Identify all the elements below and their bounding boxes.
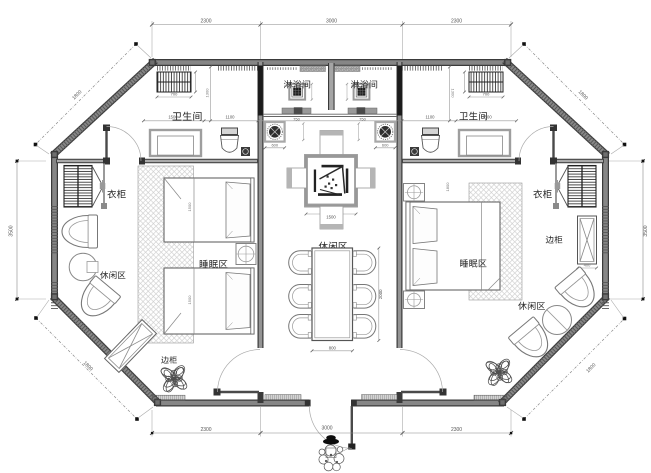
svg-text:1300: 1300: [205, 88, 210, 98]
svg-text:1500: 1500: [187, 295, 192, 305]
svg-text:600: 600: [271, 143, 278, 148]
svg-text:1500: 1500: [326, 215, 336, 220]
svg-text:1800: 1800: [445, 182, 450, 192]
svg-text:700: 700: [171, 92, 178, 97]
svg-text:400: 400: [584, 263, 591, 268]
svg-text:2300: 2300: [451, 19, 462, 25]
svg-text:2000: 2000: [378, 289, 383, 299]
svg-text:600: 600: [382, 143, 389, 148]
svg-text:1500: 1500: [187, 202, 192, 212]
svg-text:750: 750: [293, 117, 300, 122]
svg-text:3000: 3000: [321, 426, 332, 432]
svg-text:1300: 1300: [451, 89, 456, 99]
svg-text:2300: 2300: [451, 427, 462, 433]
svg-text:2300: 2300: [200, 427, 211, 433]
svg-text:1500: 1500: [482, 115, 492, 120]
svg-text:2300: 2300: [200, 19, 211, 25]
svg-text:700: 700: [483, 92, 490, 97]
svg-text:750: 750: [359, 117, 366, 122]
svg-text:3500: 3500: [9, 225, 15, 236]
svg-text:3000: 3000: [326, 19, 337, 25]
svg-text:800: 800: [329, 345, 337, 350]
svg-text:3500: 3500: [643, 225, 649, 236]
svg-text:1500: 1500: [168, 115, 178, 120]
svg-text:1100: 1100: [225, 115, 235, 120]
svg-text:1100: 1100: [425, 115, 435, 120]
